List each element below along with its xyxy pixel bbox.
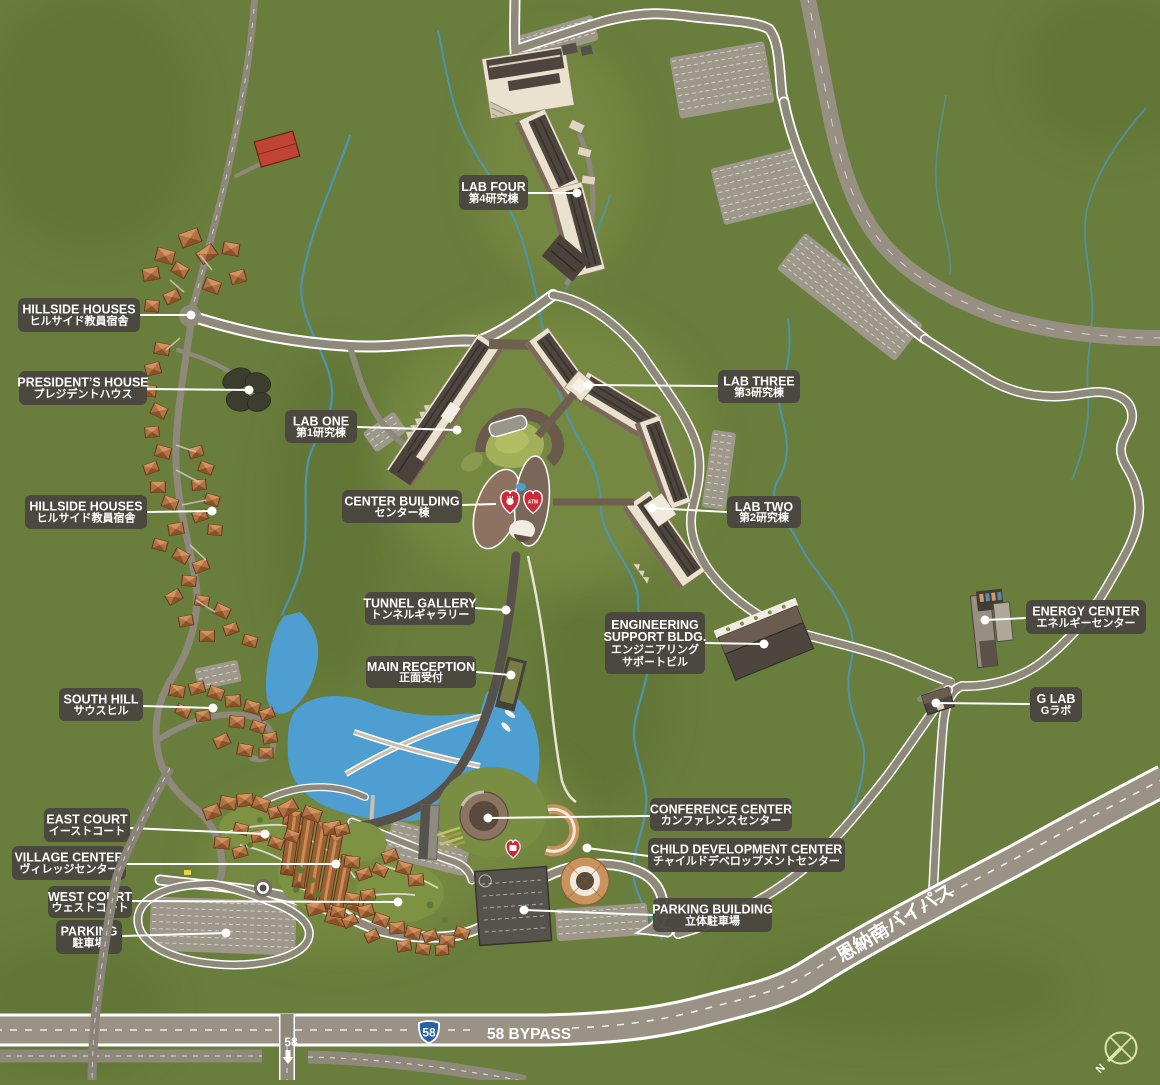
svg-text:ヒルサイド教員宿舎: ヒルサイド教員宿舎 — [37, 511, 137, 525]
svg-text:イーストコート: イーストコート — [49, 825, 125, 838]
svg-text:ヴィレッジセンター: ヴィレッジセンター — [20, 862, 119, 876]
svg-text:立体駐車場: 立体駐車場 — [685, 914, 740, 928]
svg-text:Gラボ: Gラボ — [1041, 703, 1072, 717]
svg-text:サウスヒル: サウスヒル — [74, 704, 129, 717]
svg-text:エネルギーセンター: エネルギーセンター — [1037, 616, 1136, 630]
svg-text:エンジニアリング: エンジニアリング — [611, 642, 699, 656]
svg-text:ウェストコート: ウェストコート — [52, 901, 129, 914]
svg-text:ATM: ATM — [528, 500, 538, 506]
svg-text:LAB FOUR: LAB FOUR — [461, 180, 526, 194]
svg-text:センター棟: センター棟 — [375, 505, 431, 519]
svg-text:第3研究棟: 第3研究棟 — [734, 385, 785, 399]
svg-text:第2研究棟: 第2研究棟 — [739, 510, 790, 524]
svg-text:サポートビル: サポートビル — [622, 655, 688, 669]
svg-text:チャイルドデベロップメントセンター: チャイルドデベロップメントセンター — [653, 854, 840, 868]
svg-text:G LAB: G LAB — [1037, 692, 1076, 706]
svg-text:58 BYPASS: 58 BYPASS — [487, 1026, 571, 1043]
svg-text:第4研究棟: 第4研究棟 — [468, 191, 519, 205]
svg-text:トンネルギャラリー: トンネルギャラリー — [371, 607, 470, 621]
svg-text:ヒルサイド教員宿舎: ヒルサイド教員宿舎 — [30, 314, 130, 328]
svg-text:カンファレンスセンター: カンファレンスセンター — [661, 814, 781, 827]
svg-text:プレジデントハウス: プレジデントハウス — [34, 387, 133, 401]
svg-text:58: 58 — [284, 1035, 298, 1049]
svg-text:第1研究棟: 第1研究棟 — [296, 425, 347, 439]
svg-text:正面受付: 正面受付 — [399, 670, 443, 684]
svg-text:SUPPORT BLDG.: SUPPORT BLDG. — [604, 630, 707, 644]
svg-text:58: 58 — [422, 1026, 436, 1040]
